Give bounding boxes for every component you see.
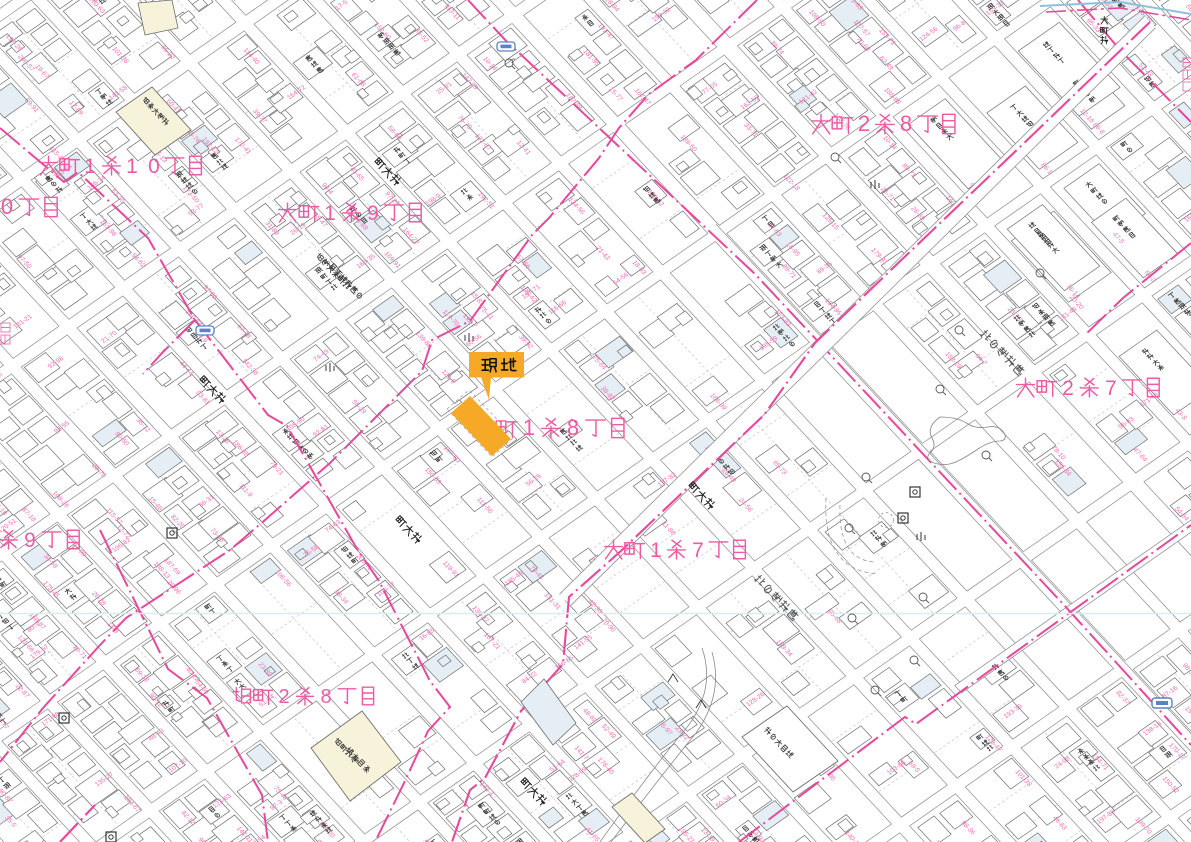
svg-text:8: 8 (900, 111, 912, 136)
svg-text:1: 1 (324, 202, 336, 225)
svg-text:9: 9 (24, 529, 36, 552)
svg-text:0: 0 (1, 194, 13, 219)
svg-text:2: 2 (278, 686, 289, 708)
svg-text:2: 2 (1062, 377, 1074, 400)
svg-text:8: 8 (320, 686, 331, 708)
svg-text:1: 1 (523, 415, 535, 440)
svg-text:1: 1 (126, 155, 138, 178)
svg-text:9: 9 (367, 202, 379, 225)
svg-text:7: 7 (692, 539, 704, 562)
svg-text:1: 1 (650, 539, 662, 562)
svg-text:1: 1 (84, 155, 96, 178)
svg-text:2: 2 (858, 111, 870, 136)
svg-text:8: 8 (567, 415, 579, 440)
svg-text:0: 0 (148, 155, 160, 178)
svg-text:7: 7 (1105, 377, 1117, 400)
